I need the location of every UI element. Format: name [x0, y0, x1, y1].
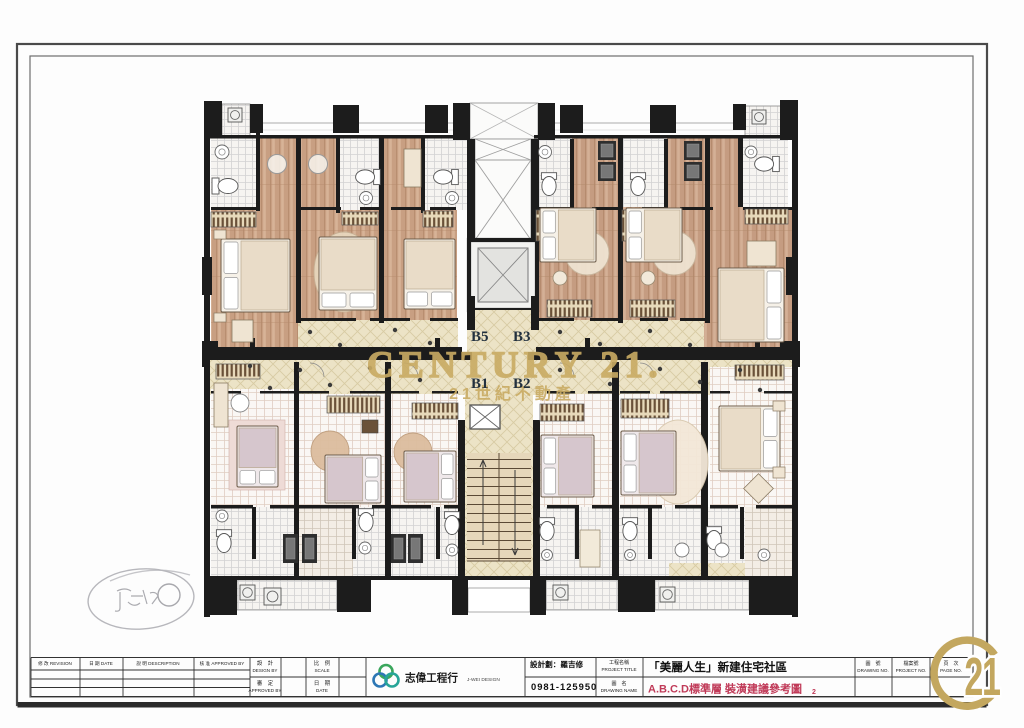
svg-text:日 期 DATE: 日 期 DATE — [89, 661, 113, 667]
svg-text:設 計: 設 計 — [257, 659, 274, 667]
svg-text:B1: B1 — [471, 376, 489, 392]
svg-text:圖 名: 圖 名 — [611, 680, 626, 687]
svg-text:DRAWING NAME: DRAWING NAME — [601, 688, 638, 693]
svg-text:修 改 REVISION: 修 改 REVISION — [38, 660, 72, 667]
svg-text:J-WEI DESIGN: J-WEI DESIGN — [467, 677, 500, 683]
svg-text:設計劃：羅吉修: 設計劃：羅吉修 — [530, 659, 584, 669]
svg-text:DATE: DATE — [316, 688, 328, 693]
svg-text:頁 次: 頁 次 — [943, 660, 958, 667]
svg-text:PAGE NO.: PAGE NO. — [940, 668, 962, 673]
svg-text:志偉工程行: 志偉工程行 — [405, 672, 458, 685]
svg-text:日 期: 日 期 — [314, 680, 330, 687]
svg-text:21世紀不動產: 21世紀不動產 — [449, 384, 575, 403]
svg-text:「美麗人生」新建住宅社區: 「美麗人生」新建住宅社區 — [648, 660, 788, 674]
svg-text:SCALE: SCALE — [314, 668, 329, 673]
svg-text:說 明 DESCRIPTION: 說 明 DESCRIPTION — [136, 660, 179, 667]
svg-text:2: 2 — [812, 689, 816, 696]
svg-text:檔案號: 檔案號 — [903, 660, 918, 667]
svg-text:PROJECT NO.: PROJECT NO. — [896, 668, 927, 673]
svg-text:審 定: 審 定 — [257, 679, 274, 687]
svg-text:比 例: 比 例 — [314, 659, 330, 667]
svg-text:APPROVED BY: APPROVED BY — [249, 688, 282, 693]
svg-text:DRAWING NO.: DRAWING NO. — [857, 668, 888, 673]
svg-text:工程名稱: 工程名稱 — [609, 659, 629, 666]
svg-text:B2: B2 — [513, 376, 531, 392]
svg-text:21: 21 — [964, 646, 1000, 707]
svg-text:B5: B5 — [471, 329, 489, 345]
svg-text:圖 號: 圖 號 — [865, 660, 880, 667]
svg-text:DESIGN BY: DESIGN BY — [252, 668, 277, 673]
svg-text:0981-125950: 0981-125950 — [531, 681, 597, 692]
svg-text:A.B.C.D標準層 裝潢建議參考圖: A.B.C.D標準層 裝潢建議參考圖 — [648, 682, 802, 696]
svg-text:B3: B3 — [513, 329, 531, 345]
svg-text:PROJECT TITLE: PROJECT TITLE — [601, 667, 636, 672]
svg-text:核 准 APPROVED BY: 核 准 APPROVED BY — [200, 660, 245, 667]
